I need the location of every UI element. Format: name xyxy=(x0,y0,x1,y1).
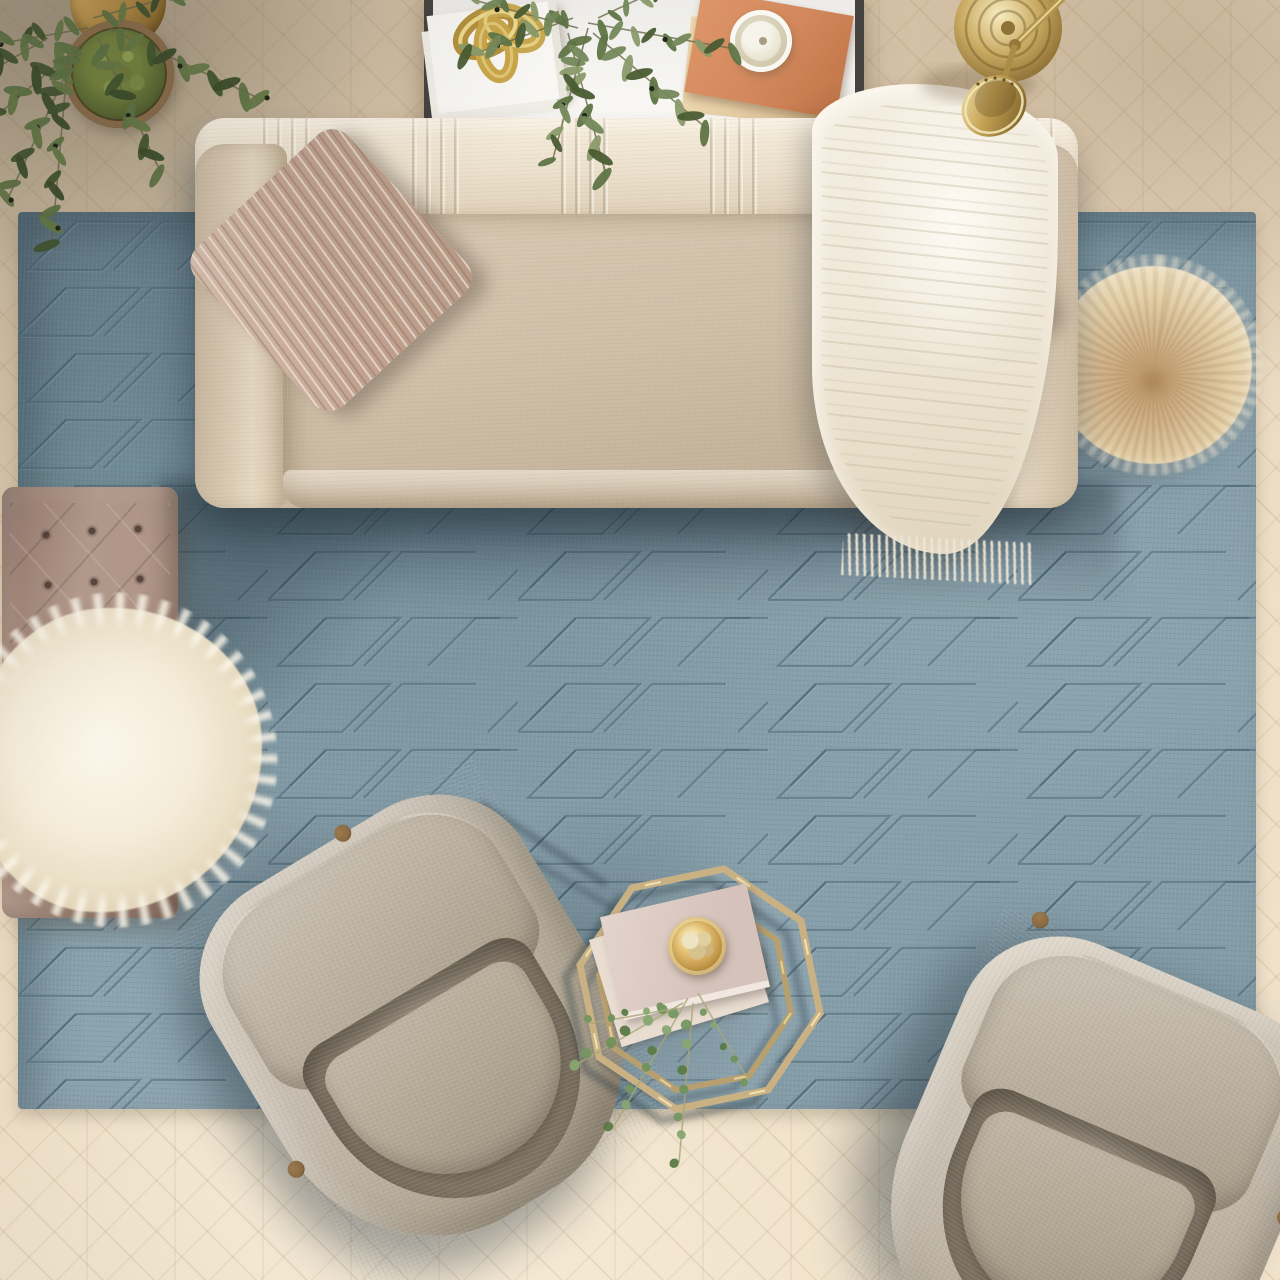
living-room-photo xyxy=(0,0,1280,1280)
eucalyptus-plant xyxy=(548,953,798,1153)
olive-branch-on-console xyxy=(438,0,804,194)
octagonal-coffee-table xyxy=(560,843,840,1135)
brass-floor-lamp xyxy=(828,0,1128,354)
olive-tree xyxy=(0,0,404,244)
sheepskin-pillow xyxy=(0,608,262,912)
